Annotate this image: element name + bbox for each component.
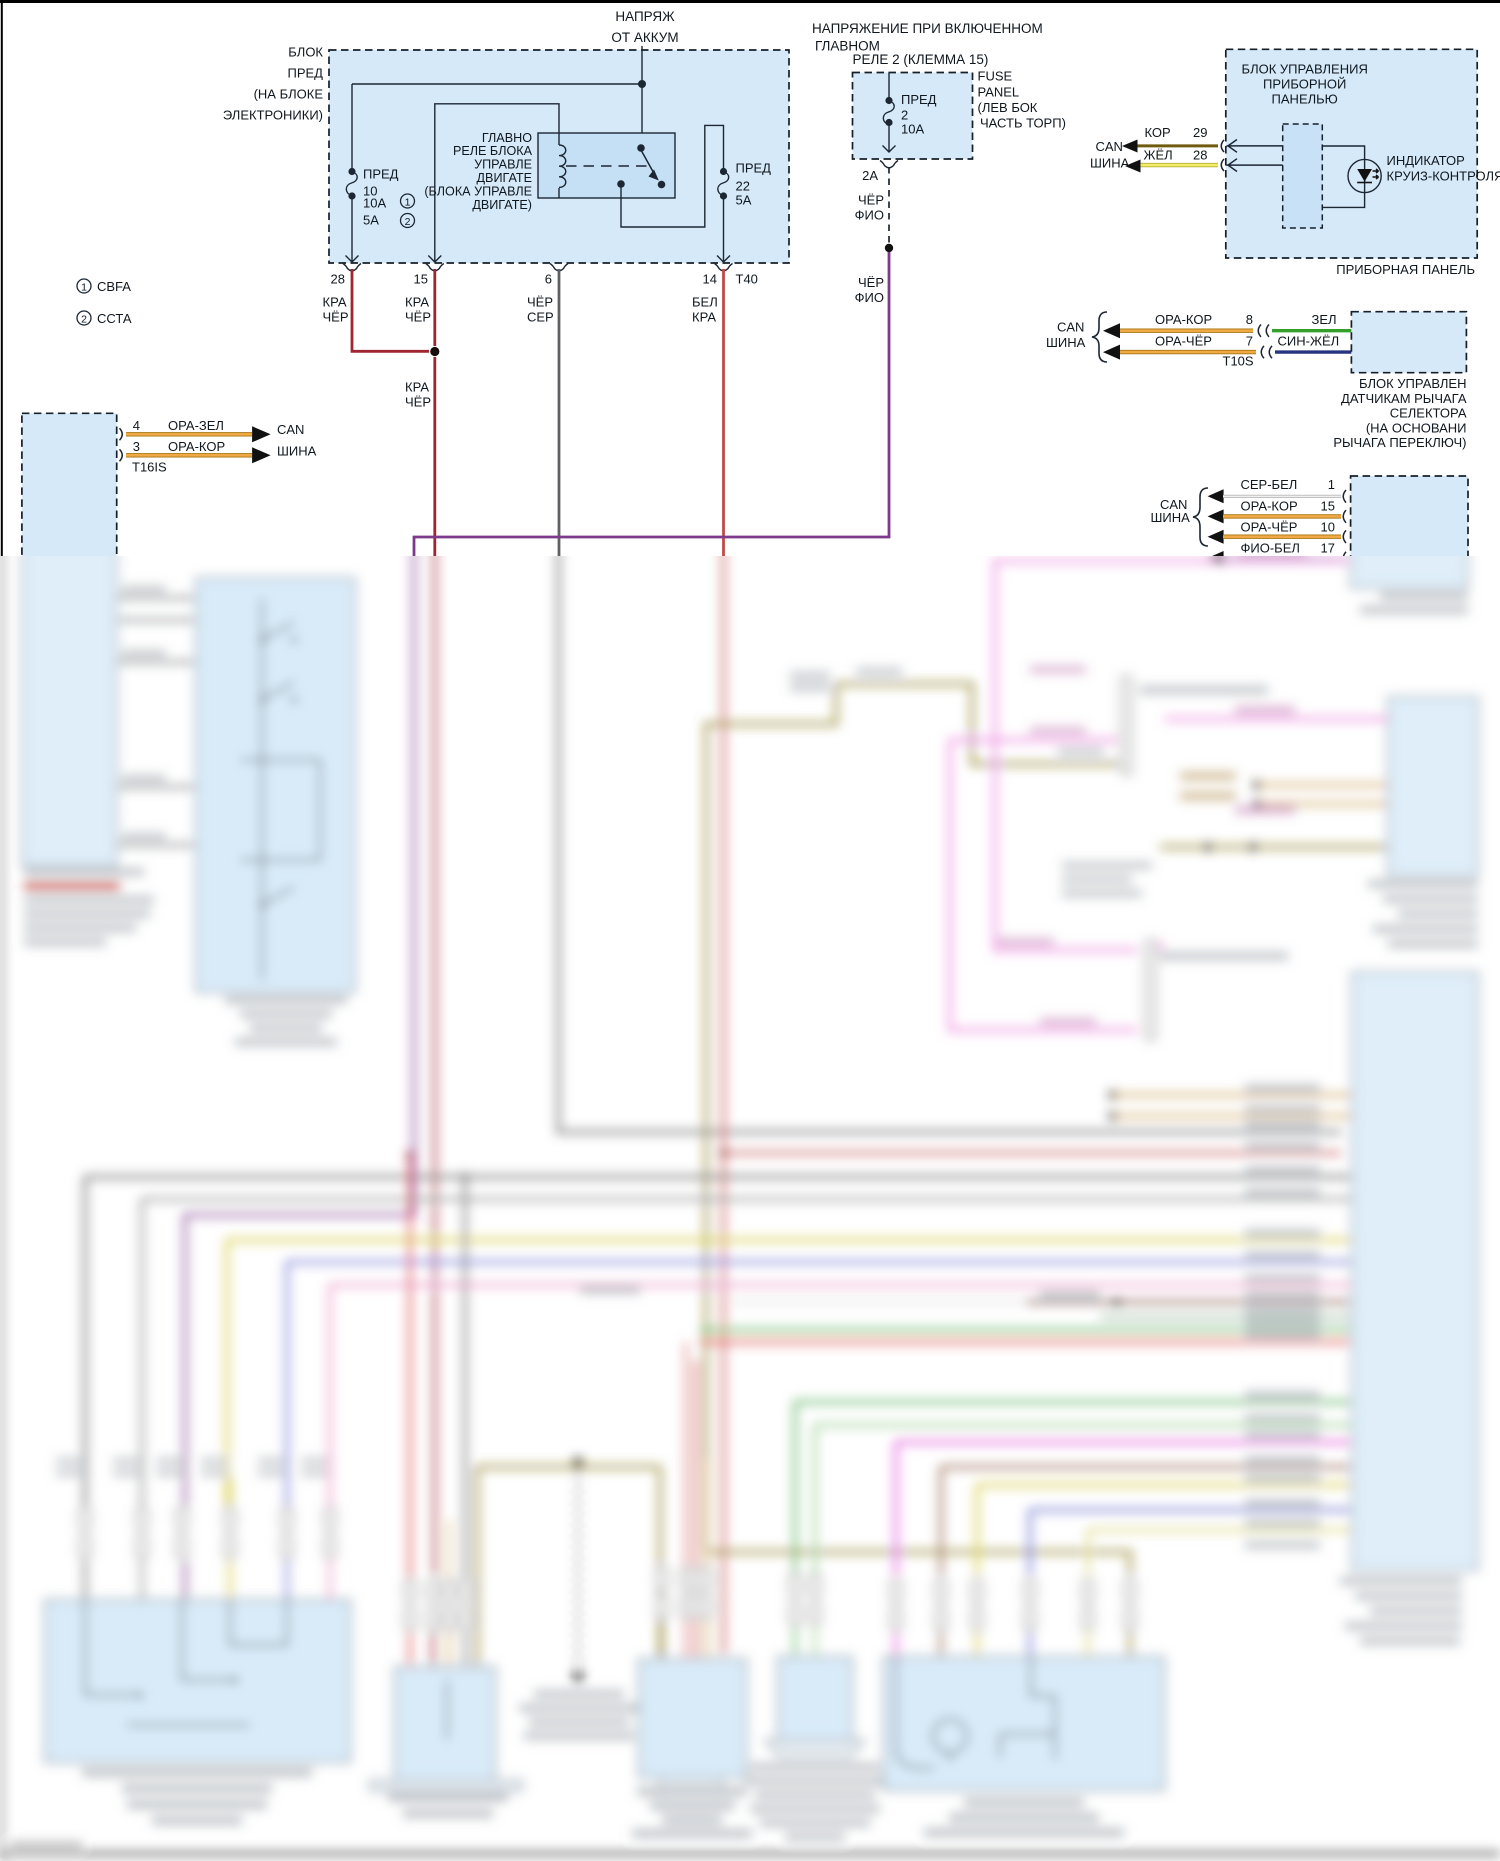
svg-text:10: 10 [1321, 520, 1335, 535]
svg-text:Т16IS: Т16IS [132, 460, 167, 475]
svg-text:10А: 10А [363, 196, 386, 211]
svg-text:ЭЛЕКТРОНИКИ): ЭЛЕКТРОНИКИ) [223, 108, 323, 123]
svg-text:ШИНА: ШИНА [1151, 510, 1191, 525]
svg-text:ЧЁР: ЧЁР [858, 275, 884, 290]
svg-text:CBFA: CBFA [97, 279, 131, 294]
svg-text:(ЛЕВ БОК: (ЛЕВ БОК [978, 100, 1038, 115]
svg-text:ОРА-КОР: ОРА-КОР [168, 439, 225, 454]
svg-text:ОТ АККУМ: ОТ АККУМ [611, 30, 678, 45]
svg-text:ПРЕД: ПРЕД [736, 161, 772, 176]
svg-text:2А: 2А [862, 168, 878, 183]
svg-text:РЫЧАГА ПЕРЕКЛЮЧ): РЫЧАГА ПЕРЕКЛЮЧ) [1333, 435, 1466, 450]
svg-text:КРА: КРА [405, 295, 429, 310]
svg-text:FUSE: FUSE [978, 69, 1013, 84]
svg-text:CAN: CAN [1096, 139, 1123, 154]
svg-text:УПРАВЛЕ: УПРАВЛЕ [474, 158, 532, 172]
svg-text:28: 28 [1193, 148, 1207, 163]
svg-text:ПРЕД: ПРЕД [363, 167, 399, 182]
svg-text:1: 1 [405, 196, 411, 208]
svg-text:(НА ОСНОВАНИ: (НА ОСНОВАНИ [1366, 420, 1467, 435]
svg-text:ЧЁР: ЧЁР [858, 193, 884, 208]
svg-text:КРА: КРА [692, 310, 716, 325]
svg-text:КРА: КРА [405, 380, 429, 395]
svg-text:ШИНА: ШИНА [277, 444, 317, 459]
svg-text:2: 2 [81, 313, 87, 325]
svg-text:22: 22 [736, 179, 750, 194]
svg-text:Т10S: Т10S [1223, 354, 1254, 369]
svg-text:ПРЕД: ПРЕД [901, 92, 937, 107]
svg-text:1: 1 [81, 281, 87, 293]
svg-text:ФИО: ФИО [855, 290, 884, 305]
svg-text:CAN: CAN [1057, 320, 1084, 335]
svg-text:ИНДИКАТОР: ИНДИКАТОР [1387, 153, 1465, 168]
svg-text:БЕЛ: БЕЛ [692, 295, 718, 310]
svg-text:ЗЕЛ: ЗЕЛ [1312, 312, 1337, 327]
svg-text:ЧЁР: ЧЁР [405, 395, 431, 410]
svg-text:ФИО-БЕЛ: ФИО-БЕЛ [1241, 540, 1300, 555]
svg-text:10А: 10А [901, 122, 924, 137]
svg-text:СЕР-БЕЛ: СЕР-БЕЛ [1241, 477, 1298, 492]
svg-text:4: 4 [133, 418, 140, 433]
svg-text:ЧАСТЬ ТОРП): ЧАСТЬ ТОРП) [980, 116, 1066, 131]
svg-text:РЕЛЕ БЛОКА: РЕЛЕ БЛОКА [453, 144, 533, 158]
svg-text:ШИНА: ШИНА [1046, 335, 1086, 350]
svg-text:7: 7 [1246, 334, 1253, 349]
svg-text:ЧЁР: ЧЁР [323, 310, 349, 325]
svg-text:ПРЕД: ПРЕД [288, 66, 324, 81]
svg-text:14: 14 [703, 272, 717, 287]
svg-text:РЕЛЕ 2 (КЛЕММА 15): РЕЛЕ 2 (КЛЕММА 15) [853, 52, 989, 67]
svg-text:ГЛАВНО: ГЛАВНО [482, 131, 532, 145]
svg-text:3: 3 [133, 439, 140, 454]
svg-text:БЛОК УПРАВЛЕН: БЛОК УПРАВЛЕН [1359, 376, 1467, 391]
svg-text:СИН-ЖЁЛ: СИН-ЖЁЛ [1278, 334, 1340, 349]
svg-text:ОРА-ЧЁР: ОРА-ЧЁР [1155, 334, 1212, 349]
svg-text:(БЛОКА УПРАВЛЕ: (БЛОКА УПРАВЛЕ [424, 184, 532, 198]
svg-text:ПАНЕЛЬЮ: ПАНЕЛЬЮ [1272, 91, 1338, 106]
svg-text:2: 2 [405, 216, 411, 228]
svg-text:6: 6 [545, 272, 552, 287]
svg-text:СЕЛЕКТОРА: СЕЛЕКТОРА [1390, 406, 1467, 421]
svg-text:15: 15 [1321, 499, 1335, 514]
svg-text:ДВИГАТЕ: ДВИГАТЕ [477, 171, 532, 185]
svg-text:ПРИБОРНАЯ ПАНЕЛЬ: ПРИБОРНАЯ ПАНЕЛЬ [1336, 262, 1475, 277]
svg-text:БЛОК: БЛОК [288, 45, 323, 60]
svg-text:ЧЁР: ЧЁР [405, 310, 431, 325]
svg-text:5А: 5А [363, 213, 379, 228]
svg-text:2: 2 [901, 108, 908, 123]
svg-text:1: 1 [1328, 477, 1335, 492]
svg-text:КОР: КОР [1145, 125, 1171, 140]
svg-text:ОРА-КОР: ОРА-КОР [1155, 312, 1212, 327]
svg-text:БЛОК УПРАВЛЕНИЯ: БЛОК УПРАВЛЕНИЯ [1242, 61, 1368, 76]
svg-text:КРА: КРА [323, 295, 347, 310]
svg-text:29: 29 [1193, 125, 1207, 140]
svg-text:ОРА-ЗЕЛ: ОРА-ЗЕЛ [168, 418, 224, 433]
svg-text:ЖЁЛ: ЖЁЛ [1144, 148, 1173, 163]
svg-text:ДАТЧИКАМ РЫЧАГА: ДАТЧИКАМ РЫЧАГА [1341, 391, 1467, 406]
svg-text:СЕР: СЕР [527, 310, 554, 325]
svg-text:5А: 5А [736, 193, 752, 208]
svg-text:(НА БЛОКЕ: (НА БЛОКЕ [254, 87, 324, 102]
svg-text:28: 28 [331, 272, 345, 287]
svg-text:ОРА-ЧЁР: ОРА-ЧЁР [1241, 520, 1298, 535]
svg-text:ССТА: ССТА [97, 311, 132, 326]
svg-text:Т40: Т40 [736, 272, 758, 287]
svg-text:ШИНА: ШИНА [1090, 156, 1130, 171]
svg-text:ПРИБОРНОЙ: ПРИБОРНОЙ [1263, 76, 1346, 91]
svg-text:ФИО: ФИО [855, 208, 884, 223]
svg-text:PANEL: PANEL [978, 85, 1020, 100]
svg-text:НАПРЯЖЕНИЕ ПРИ ВКЛЮЧЕННОМ: НАПРЯЖЕНИЕ ПРИ ВКЛЮЧЕННОМ [812, 21, 1043, 36]
svg-text:8: 8 [1246, 312, 1253, 327]
svg-text:ДВИГАТЕ): ДВИГАТЕ) [472, 198, 532, 212]
svg-text:ОРА-КОР: ОРА-КОР [1241, 499, 1298, 514]
svg-text:15: 15 [414, 272, 428, 287]
svg-text:КРУИЗ-КОНТРОЛЯ: КРУИЗ-КОНТРОЛЯ [1387, 168, 1500, 183]
svg-text:ЧЁР: ЧЁР [527, 295, 553, 310]
svg-text:17: 17 [1321, 540, 1335, 555]
svg-text:CAN: CAN [277, 422, 304, 437]
svg-text:НАПРЯЖ: НАПРЯЖ [615, 9, 675, 24]
